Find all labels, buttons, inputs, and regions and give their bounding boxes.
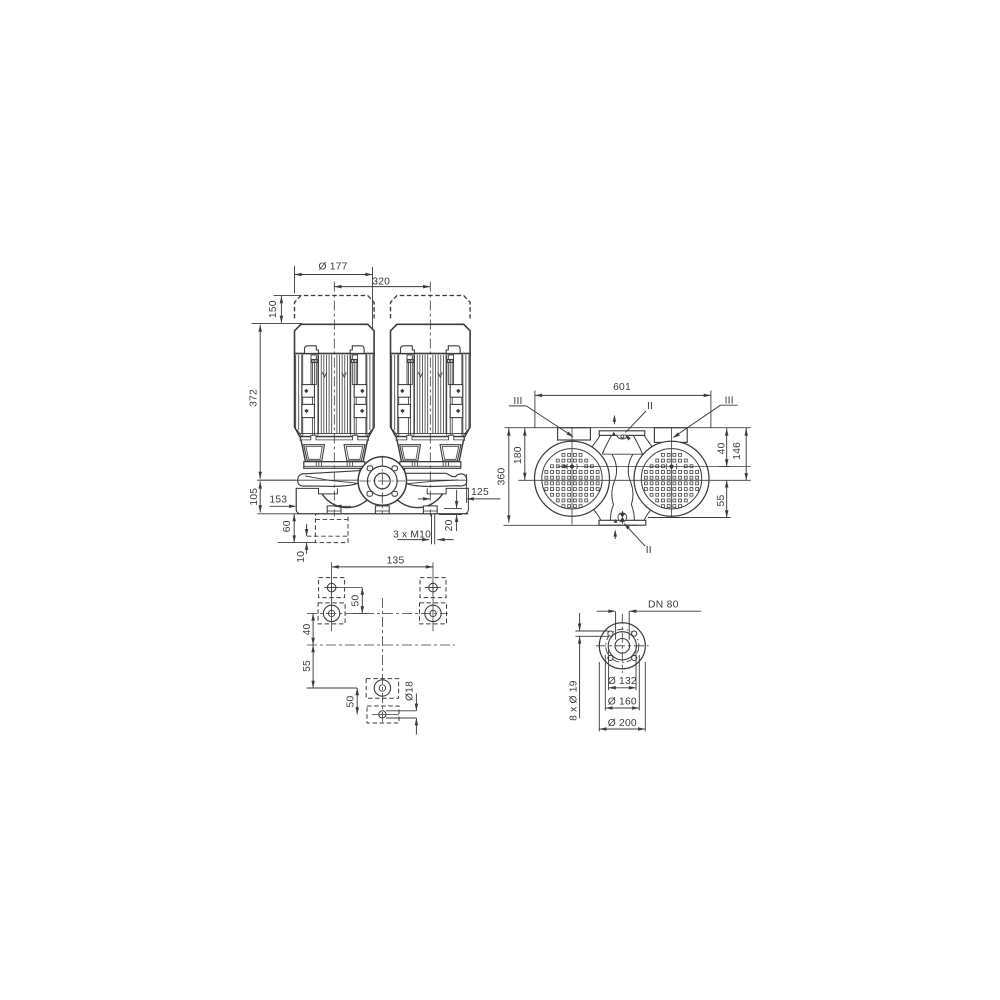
svg-text:40: 40 xyxy=(302,624,313,636)
svg-text:153: 153 xyxy=(269,495,287,506)
svg-text:Ø 132: Ø 132 xyxy=(608,676,637,687)
svg-text:III: III xyxy=(513,396,522,407)
svg-text:320: 320 xyxy=(372,277,390,288)
svg-text:50: 50 xyxy=(351,595,362,607)
svg-text:60: 60 xyxy=(282,520,293,532)
svg-text:III: III xyxy=(725,395,734,406)
svg-text:DN 80: DN 80 xyxy=(648,599,679,610)
svg-text:360: 360 xyxy=(496,468,507,486)
svg-text:20: 20 xyxy=(444,519,455,531)
svg-text:180: 180 xyxy=(513,446,524,464)
svg-text:Ø18: Ø18 xyxy=(404,681,415,701)
svg-text:135: 135 xyxy=(387,555,405,566)
svg-text:Ø 177: Ø 177 xyxy=(318,261,347,272)
svg-text:II: II xyxy=(646,545,652,556)
svg-text:105: 105 xyxy=(249,488,260,506)
svg-text:40: 40 xyxy=(716,442,727,454)
svg-text:Ø 160: Ø 160 xyxy=(608,696,637,707)
svg-text:50: 50 xyxy=(346,696,357,708)
svg-text:Ø 200: Ø 200 xyxy=(608,718,637,729)
svg-text:8 x Ø 19: 8 x Ø 19 xyxy=(568,680,579,721)
svg-text:II: II xyxy=(647,401,653,412)
svg-text:55: 55 xyxy=(716,495,727,507)
svg-text:10: 10 xyxy=(296,551,307,563)
svg-text:55: 55 xyxy=(302,660,313,672)
svg-text:601: 601 xyxy=(613,382,631,393)
svg-text:372: 372 xyxy=(249,389,260,407)
svg-text:150: 150 xyxy=(268,300,279,318)
svg-text:146: 146 xyxy=(732,442,743,460)
svg-text:125: 125 xyxy=(471,487,489,498)
